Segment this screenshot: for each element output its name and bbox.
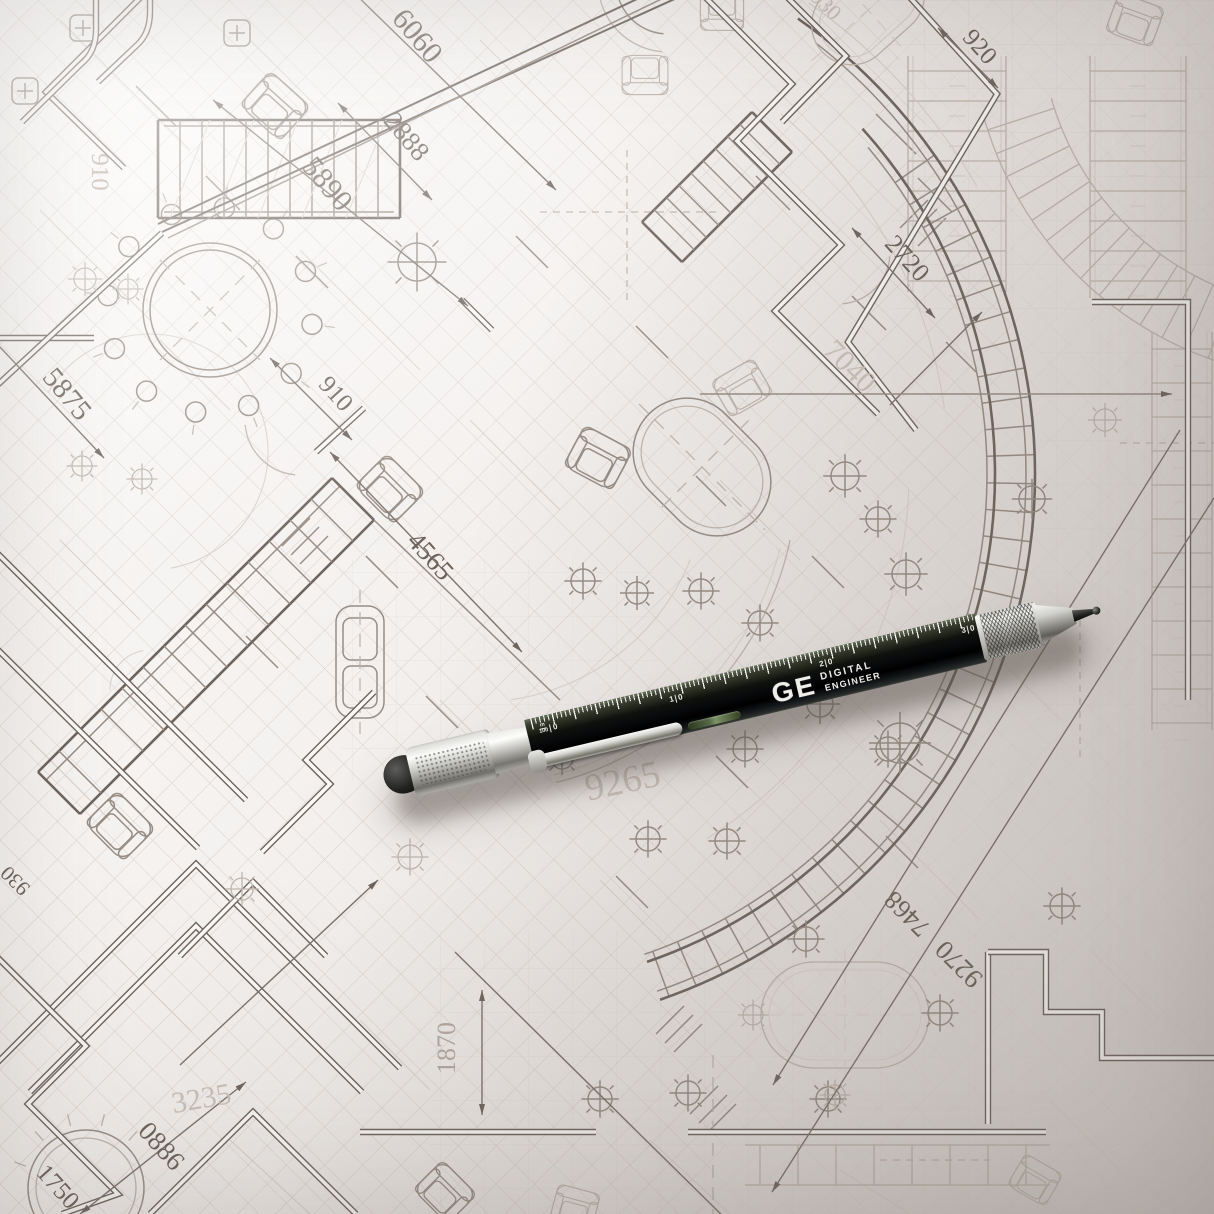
photo-blueprint-with-pen: 6060288858909105875910456592027207040930… xyxy=(0,0,1214,1214)
ruler-label-30: 30 xyxy=(960,623,975,635)
dimension-label: 1870 xyxy=(432,1022,461,1074)
dimension-label: 910 xyxy=(86,153,113,191)
ruler-label-10: 10 xyxy=(668,692,683,704)
pen-ball-nib xyxy=(1092,606,1102,616)
pen-knurled-grip xyxy=(974,602,1045,661)
ruler-scale-unit: m1000 xyxy=(538,720,559,735)
